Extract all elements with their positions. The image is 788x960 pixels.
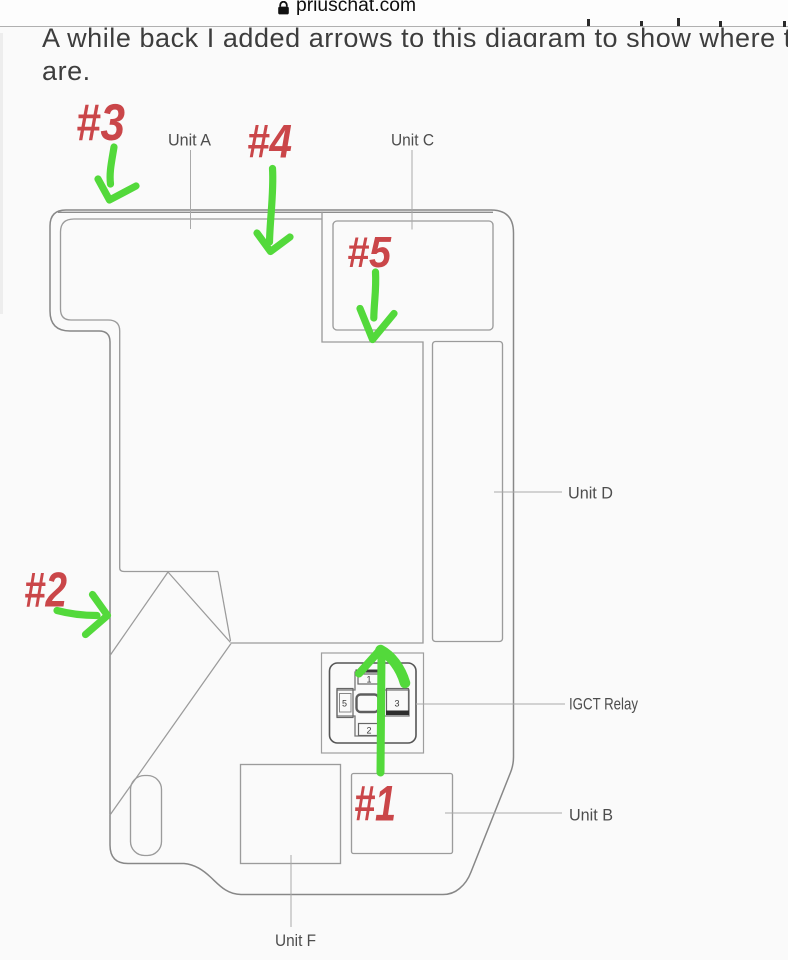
svg-text:#4: #4 xyxy=(247,115,292,168)
svg-text:Unit A: Unit A xyxy=(168,131,212,150)
svg-text:3: 3 xyxy=(395,699,400,709)
svg-text:2: 2 xyxy=(367,726,372,736)
svg-text:1: 1 xyxy=(367,675,372,685)
svg-text:Unit B: Unit B xyxy=(569,806,613,825)
svg-text:5: 5 xyxy=(342,699,347,709)
svg-text:#3: #3 xyxy=(76,94,125,152)
svg-text:Unit D: Unit D xyxy=(568,484,613,503)
svg-text:Unit F: Unit F xyxy=(275,931,316,950)
svg-text:#5: #5 xyxy=(347,228,391,277)
svg-text:IGCT Relay: IGCT Relay xyxy=(569,695,638,714)
svg-text:Unit C: Unit C xyxy=(391,131,434,150)
svg-text:#1: #1 xyxy=(354,776,396,832)
